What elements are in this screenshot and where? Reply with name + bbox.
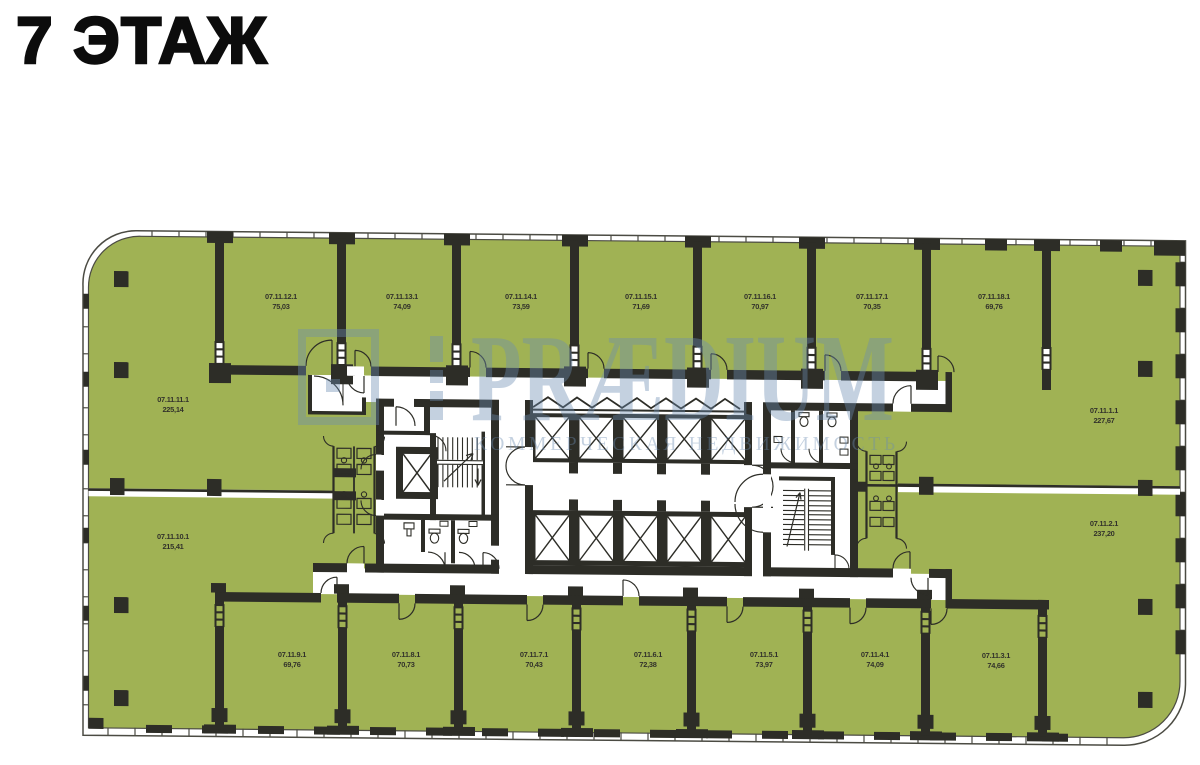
svg-text:07.11.16.1: 07.11.16.1 — [744, 292, 776, 301]
svg-text:КОММЕРЧЕСКАЯ НЕДВИЖИМОСТЬ: КОММЕРЧЕСКАЯ НЕДВИЖИМОСТЬ — [474, 434, 899, 455]
svg-text:07.11.11.1: 07.11.11.1 — [157, 395, 189, 404]
svg-text:07.11.12.1: 07.11.12.1 — [265, 292, 297, 301]
svg-text:07.11.13.1: 07.11.13.1 — [386, 292, 418, 301]
svg-text:225,14: 225,14 — [162, 405, 184, 414]
svg-text:74,66: 74,66 — [987, 661, 1004, 670]
svg-text:07.11.3.1: 07.11.3.1 — [982, 651, 1010, 660]
svg-text:74,09: 74,09 — [393, 302, 410, 311]
svg-text:7 ЭТАЖ: 7 ЭТАЖ — [16, 3, 267, 77]
svg-text:72,38: 72,38 — [639, 660, 656, 669]
svg-text:07.11.5.1: 07.11.5.1 — [750, 650, 778, 659]
svg-text:PRÆDIUM: PRÆDIUM — [471, 309, 894, 447]
svg-text:07.11.1.1: 07.11.1.1 — [1090, 406, 1118, 415]
svg-text:227,67: 227,67 — [1093, 416, 1114, 425]
svg-text:215,41: 215,41 — [162, 542, 183, 551]
svg-text:07.11.2.1: 07.11.2.1 — [1090, 519, 1118, 528]
svg-text:69,76: 69,76 — [985, 302, 1002, 311]
svg-text:74,09: 74,09 — [866, 660, 883, 669]
svg-text:07.11.9.1: 07.11.9.1 — [278, 650, 306, 659]
svg-text:07.11.18.1: 07.11.18.1 — [978, 292, 1010, 301]
svg-text:75,03: 75,03 — [272, 302, 289, 311]
svg-text:07.11.6.1: 07.11.6.1 — [634, 650, 662, 659]
svg-text:237,20: 237,20 — [1093, 529, 1114, 538]
svg-text:69,76: 69,76 — [283, 660, 300, 669]
svg-text:70,43: 70,43 — [525, 660, 542, 669]
svg-text:07.11.17.1: 07.11.17.1 — [856, 292, 888, 301]
svg-text:70,73: 70,73 — [397, 660, 414, 669]
svg-text:73,97: 73,97 — [755, 660, 772, 669]
svg-text:07.11.10.1: 07.11.10.1 — [157, 532, 189, 541]
svg-text:07.11.8.1: 07.11.8.1 — [392, 650, 420, 659]
svg-text:07.11.7.1: 07.11.7.1 — [520, 650, 548, 659]
svg-text:07.11.15.1: 07.11.15.1 — [625, 292, 657, 301]
svg-text:07.11.4.1: 07.11.4.1 — [861, 650, 889, 659]
svg-text:07.11.14.1: 07.11.14.1 — [505, 292, 537, 301]
